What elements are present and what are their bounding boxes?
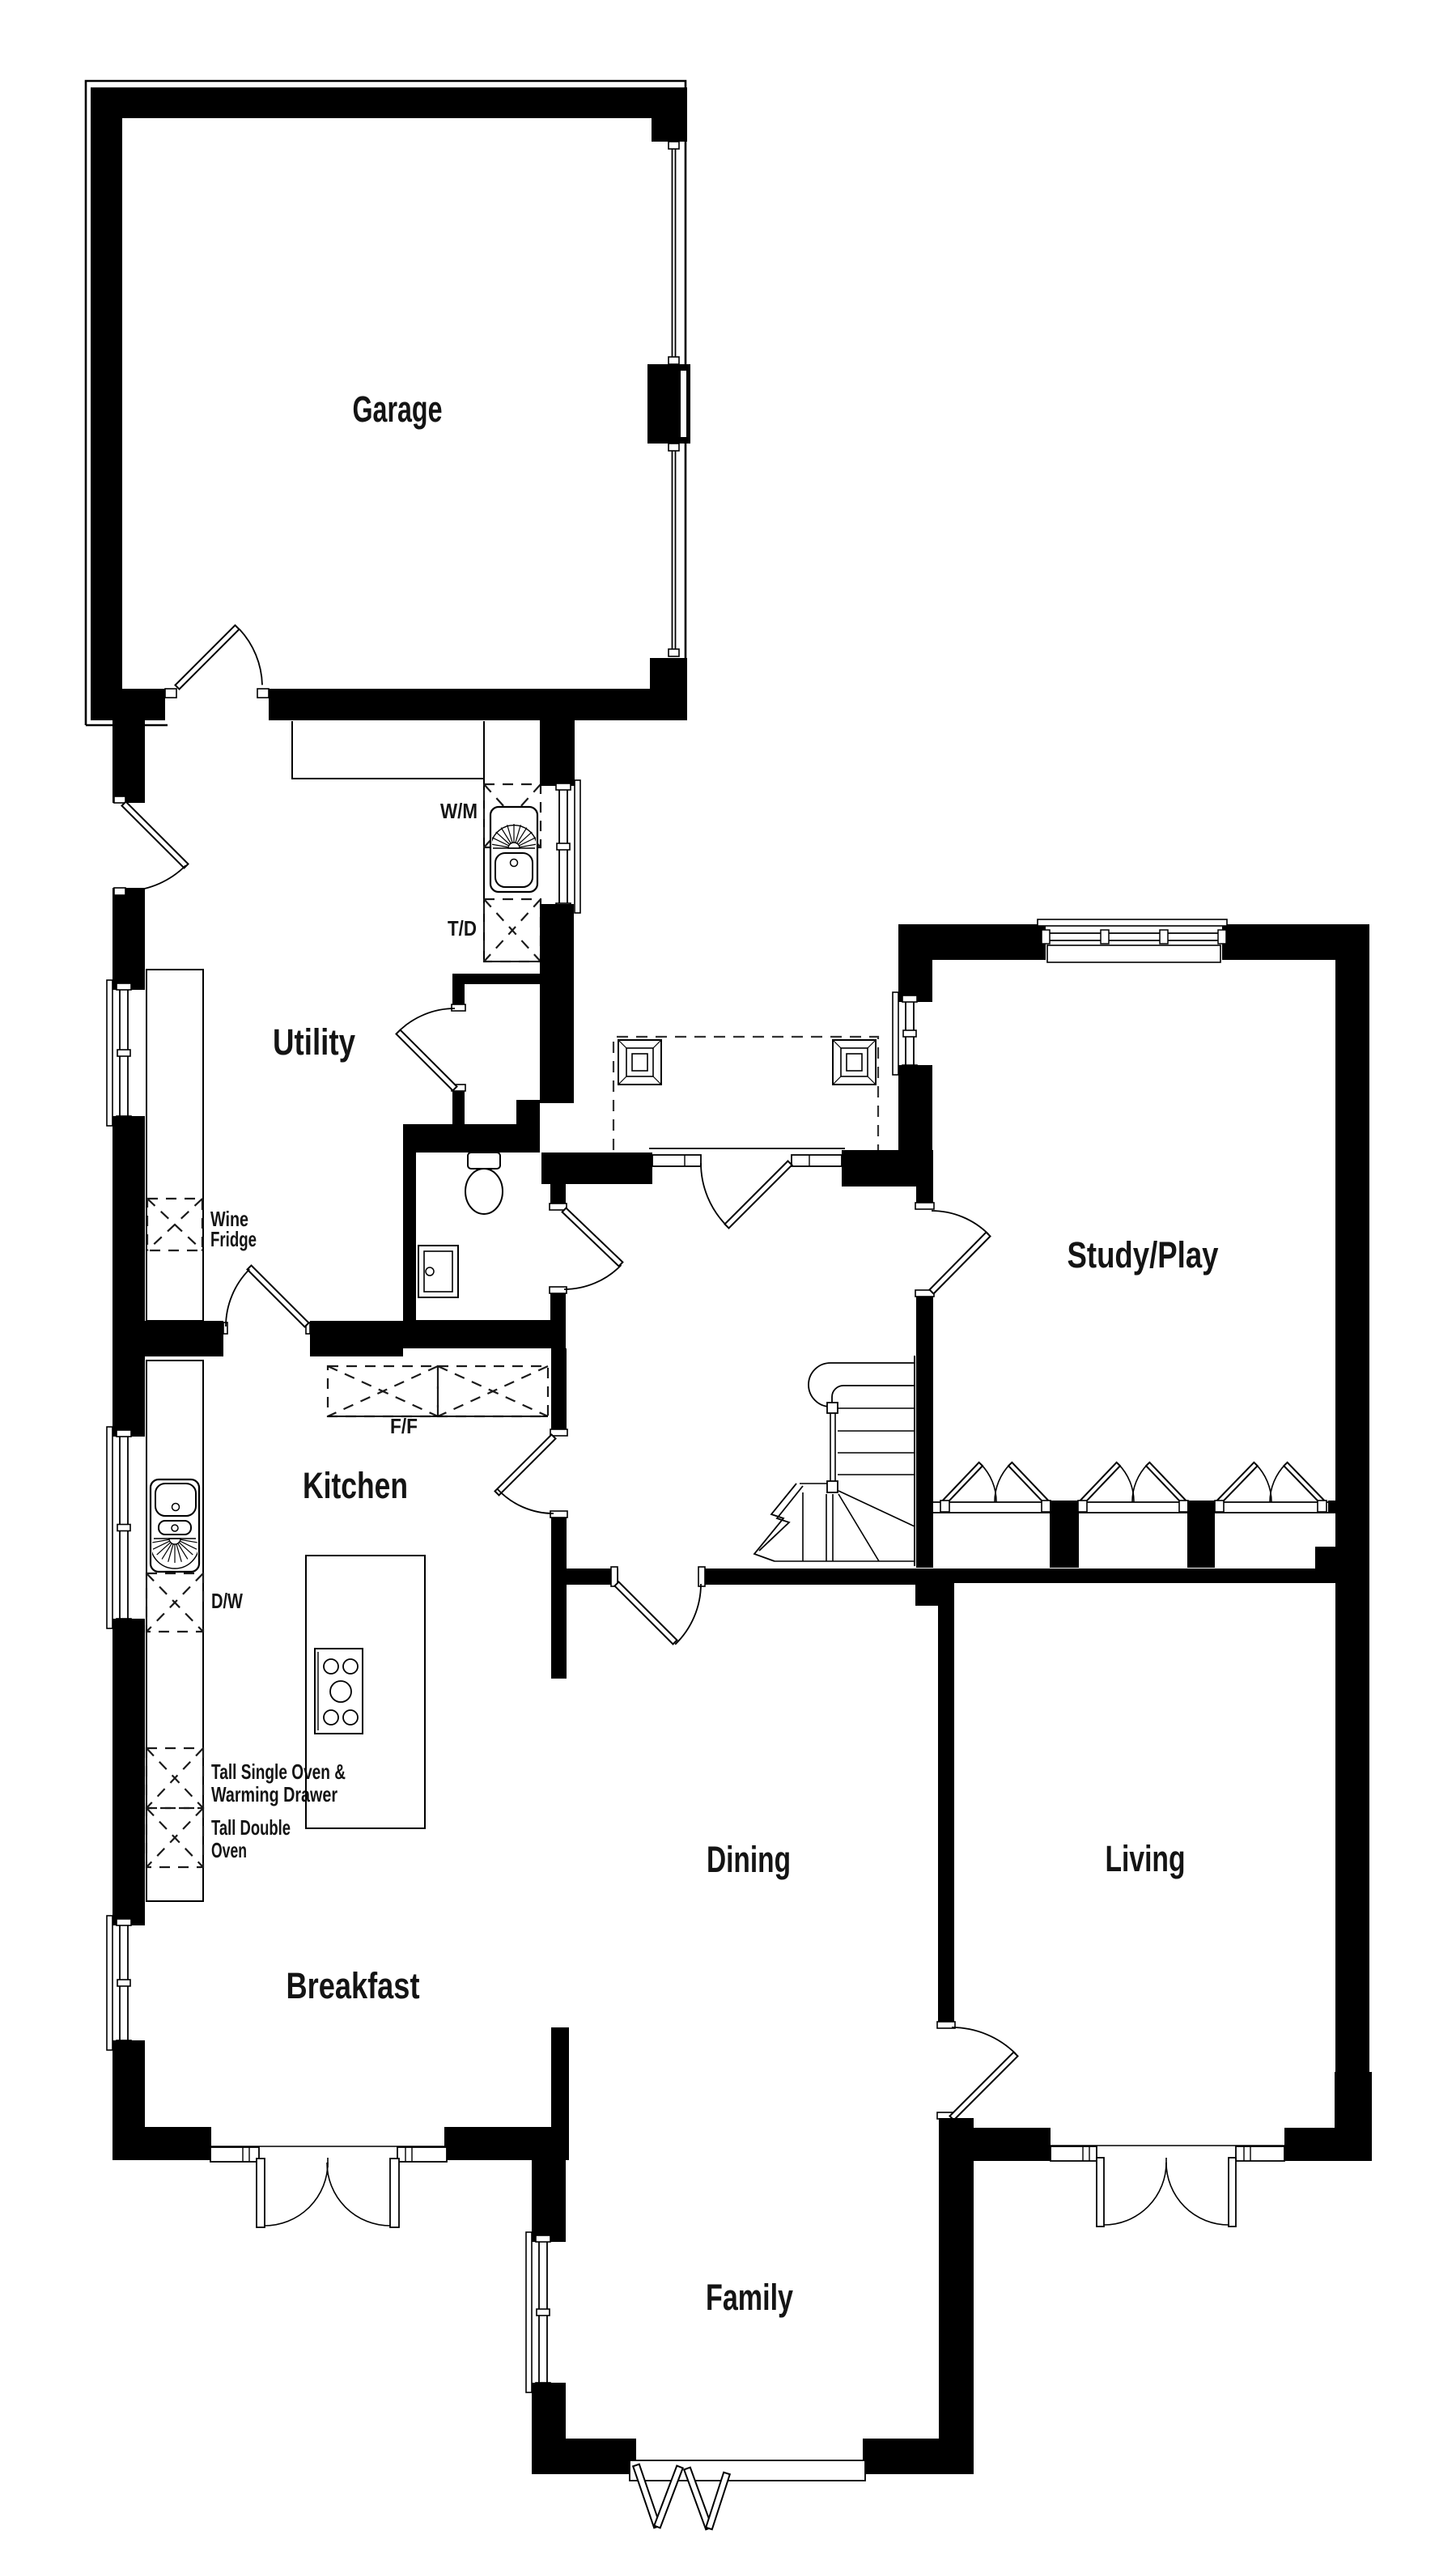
svg-text:Garage: Garage xyxy=(353,388,443,430)
svg-text:Kitchen: Kitchen xyxy=(303,1465,408,1506)
svg-text:Utility: Utility xyxy=(273,1021,355,1063)
svg-text:Living: Living xyxy=(1106,1838,1186,1879)
svg-text:Warming Drawer: Warming Drawer xyxy=(211,1782,337,1806)
svg-text:Family: Family xyxy=(706,2277,793,2318)
svg-text:F/F: F/F xyxy=(390,1414,418,1438)
svg-text:Tall Single Oven &: Tall Single Oven & xyxy=(211,1760,346,1784)
svg-text:W/M: W/M xyxy=(440,799,478,823)
svg-text:Study/Play: Study/Play xyxy=(1068,1234,1219,1276)
svg-text:T/D: T/D xyxy=(448,916,477,940)
svg-text:Oven: Oven xyxy=(211,1838,247,1862)
svg-text:Breakfast: Breakfast xyxy=(287,1965,420,2006)
svg-text:Dining: Dining xyxy=(707,1839,791,1880)
svg-text:Tall Double: Tall Double xyxy=(211,1815,291,1840)
svg-text:D/W: D/W xyxy=(211,1589,243,1613)
svg-text:Fridge: Fridge xyxy=(210,1227,257,1251)
